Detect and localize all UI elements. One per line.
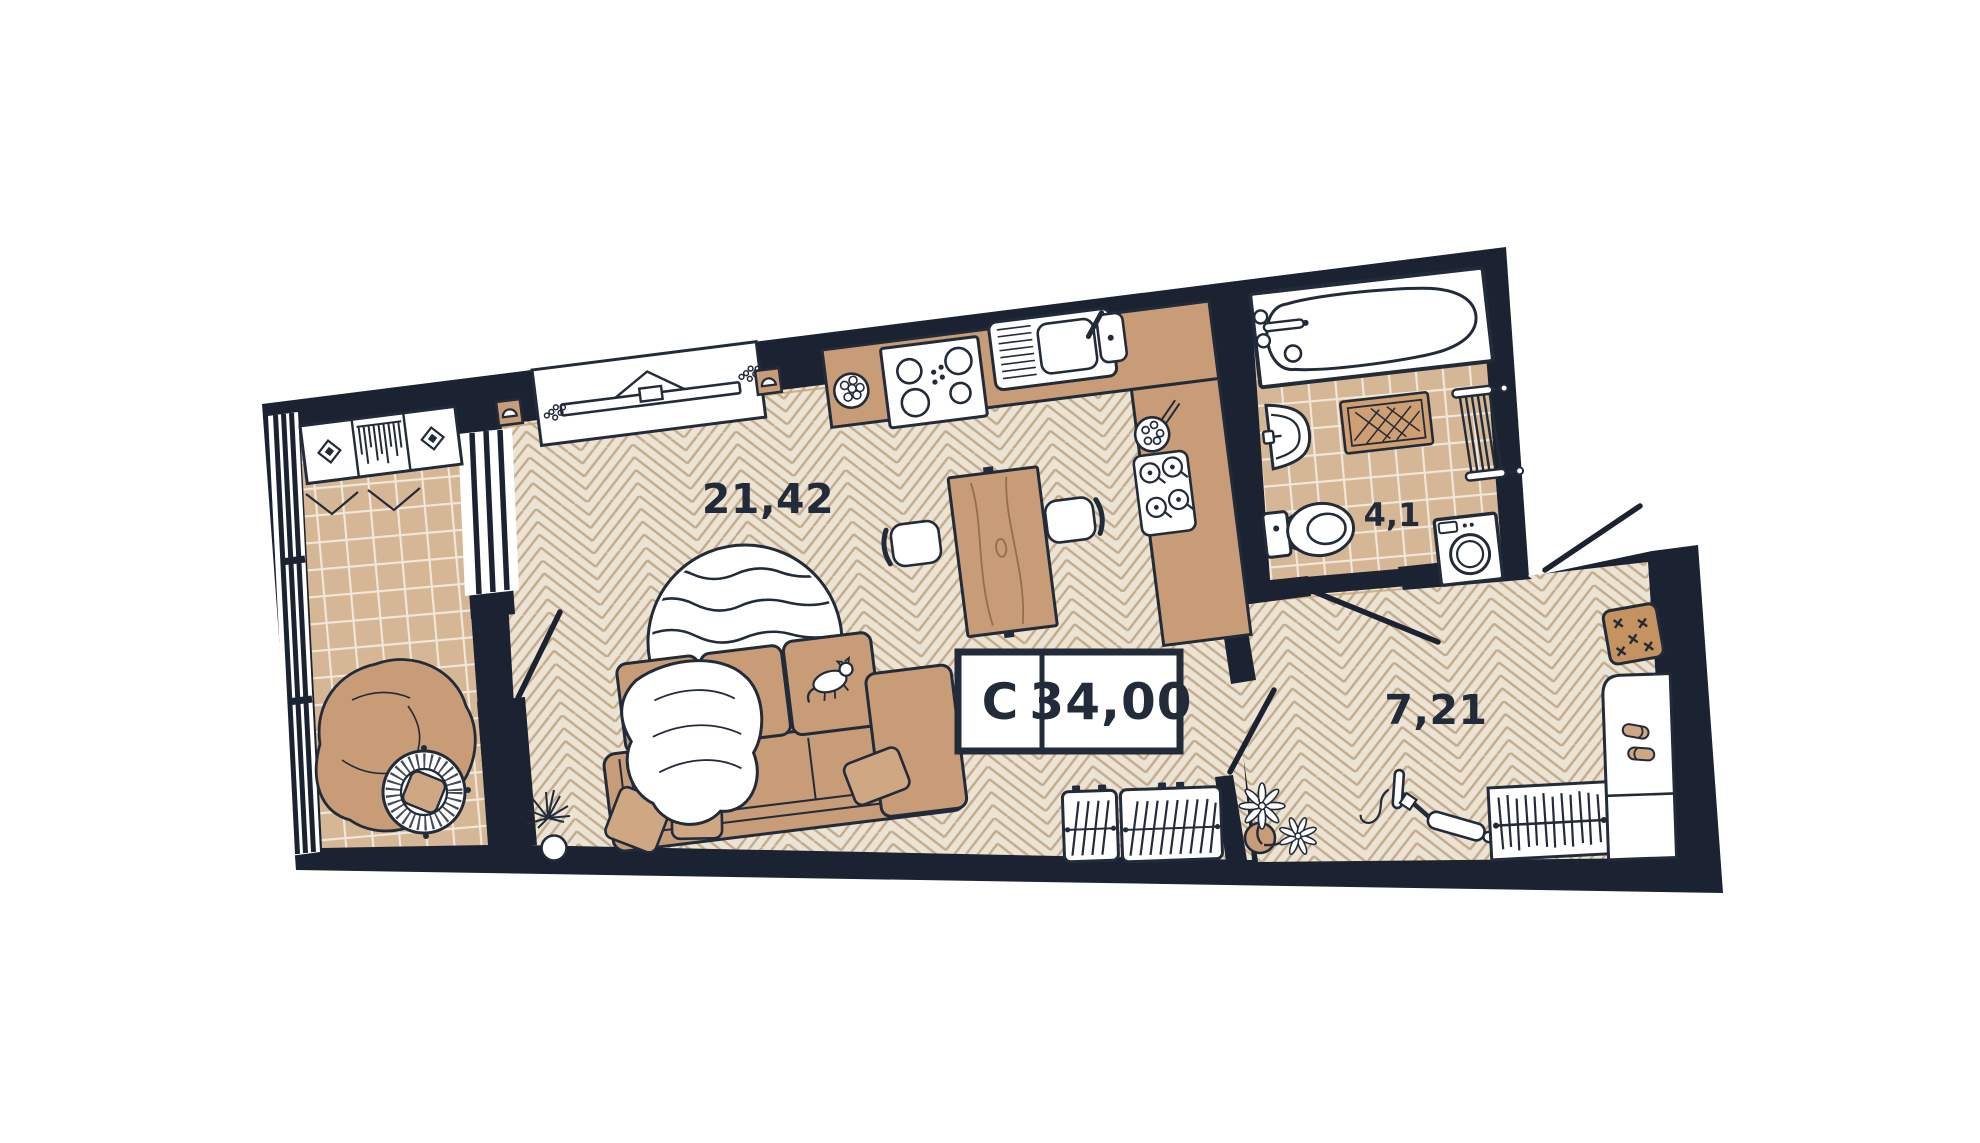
bathroom-area-label: 4,1 [1364,496,1421,534]
floor-plan-canvas: 21,42 4,1 7,21 C 34,00 [0,0,1980,1143]
floor-plan-page: 21,42 4,1 7,21 C 34,00 [0,0,1980,1143]
tea-tray-icon [1133,450,1197,536]
wall-lamp-icon [755,368,782,395]
kitchen-sink-icon [988,306,1129,390]
balcony-divider-window [458,428,519,596]
daisy-icon [1239,783,1285,829]
hall-wardrobe-hangers [1488,782,1612,860]
shoe-cabinet-large [1120,781,1223,862]
dining-table [947,461,1058,643]
unit-area-badge: C 34,00 [958,652,1193,751]
shoe-bench [1602,674,1676,860]
living-room-area-label: 21,42 [702,475,834,523]
shoe-cabinet-small [1062,784,1119,862]
doormat [1602,603,1665,666]
hallway-area-label: 7,21 [1384,686,1487,734]
bath-mat [1340,392,1433,454]
wall-lamp-icon [496,399,523,426]
unit-type-label: C [982,673,1019,731]
cooktop-icon [880,336,987,428]
unit-total-area: 34,00 [1029,673,1192,731]
washing-machine [1434,513,1503,586]
slippers-icon [1628,747,1655,761]
